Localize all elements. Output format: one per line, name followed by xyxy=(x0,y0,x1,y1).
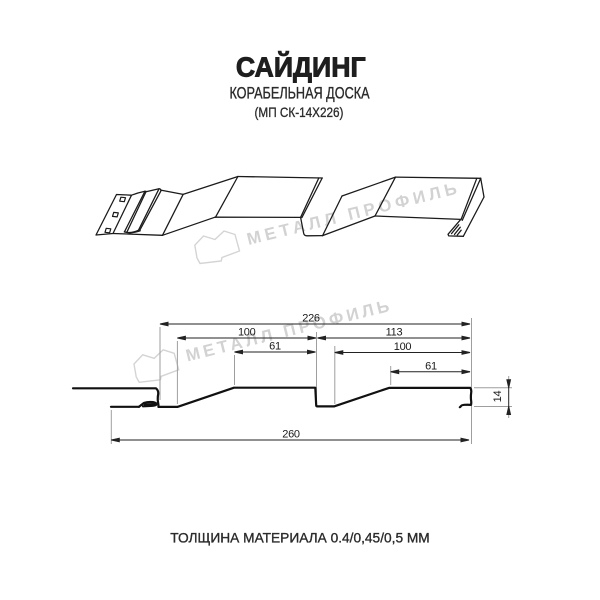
svg-text:САЙДИНГ: САЙДИНГ xyxy=(236,51,366,83)
svg-text:100: 100 xyxy=(394,341,412,353)
svg-text:61: 61 xyxy=(425,360,437,372)
svg-text:ТОЛЩИНА МАТЕРИАЛА 0.4/0,45/0,5: ТОЛЩИНА МАТЕРИАЛА 0.4/0,45/0,5 ММ xyxy=(170,529,429,545)
svg-text:113: 113 xyxy=(386,327,403,339)
svg-text:МЕТАЛЛ ПРОФИЛЬ: МЕТАЛЛ ПРОФИЛЬ xyxy=(245,178,463,249)
svg-text:МЕТАЛЛ ПРОФИЛЬ: МЕТАЛЛ ПРОФИЛЬ xyxy=(184,296,395,366)
svg-text:260: 260 xyxy=(282,429,300,441)
svg-text:100: 100 xyxy=(238,327,256,339)
svg-text:226: 226 xyxy=(302,313,320,325)
svg-text:(МП СК-14Х226): (МП СК-14Х226) xyxy=(255,105,344,120)
svg-text:14: 14 xyxy=(492,391,504,403)
svg-text:КОРАБЕЛЬНАЯ ДОСКА: КОРАБЕЛЬНАЯ ДОСКА xyxy=(229,84,369,103)
svg-text:61: 61 xyxy=(269,341,281,353)
